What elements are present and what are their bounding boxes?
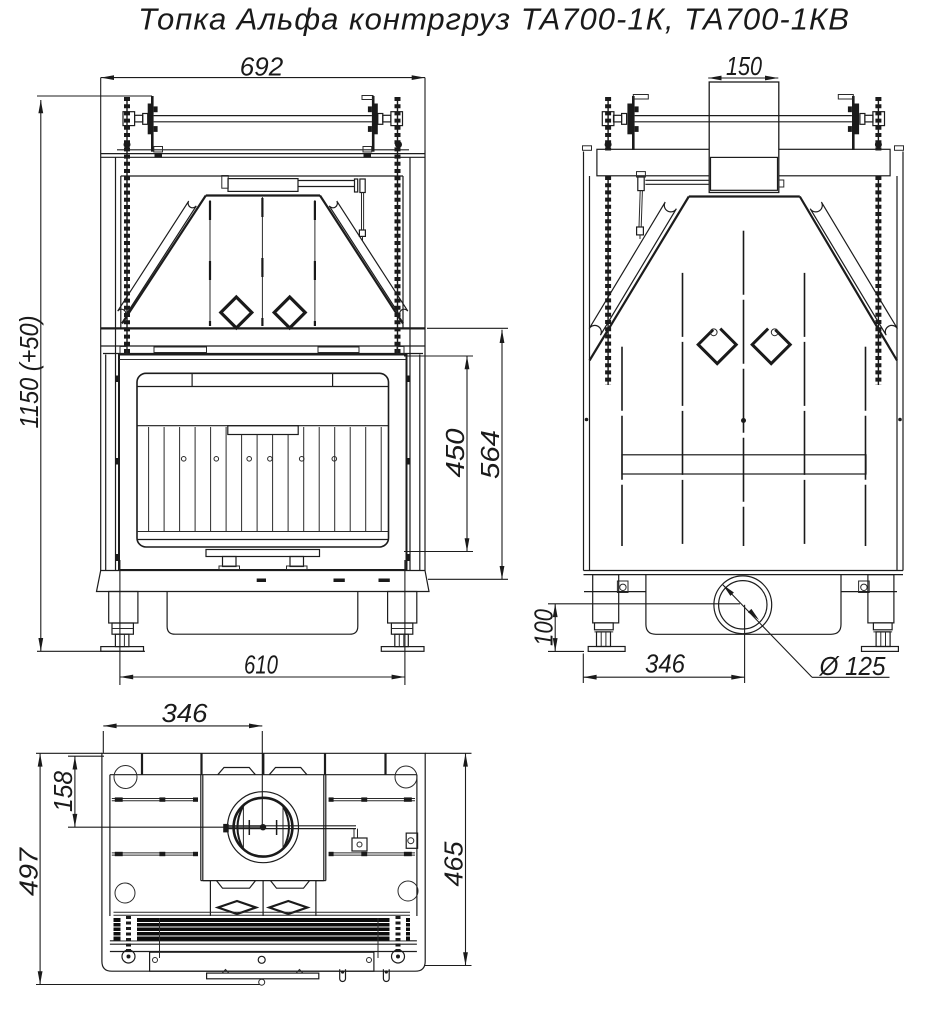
- svg-text:Топка Альфа контргруз ТА700-1К: Топка Альфа контргруз ТА700-1К, ТА700-1К…: [138, 2, 850, 37]
- svg-text:150: 150: [726, 51, 762, 81]
- svg-text:346: 346: [162, 698, 209, 728]
- svg-text:692: 692: [240, 52, 284, 82]
- svg-text:497: 497: [13, 846, 43, 896]
- svg-text:100: 100: [528, 609, 558, 646]
- svg-text:610: 610: [244, 650, 278, 680]
- svg-text:1150 (+50): 1150 (+50): [14, 316, 44, 429]
- svg-text:158: 158: [48, 770, 78, 812]
- svg-text:465: 465: [439, 841, 469, 887]
- svg-text:Ø 125: Ø 125: [819, 651, 886, 681]
- svg-text:564: 564: [475, 430, 505, 479]
- svg-text:450: 450: [440, 428, 470, 478]
- svg-text:346: 346: [645, 649, 685, 679]
